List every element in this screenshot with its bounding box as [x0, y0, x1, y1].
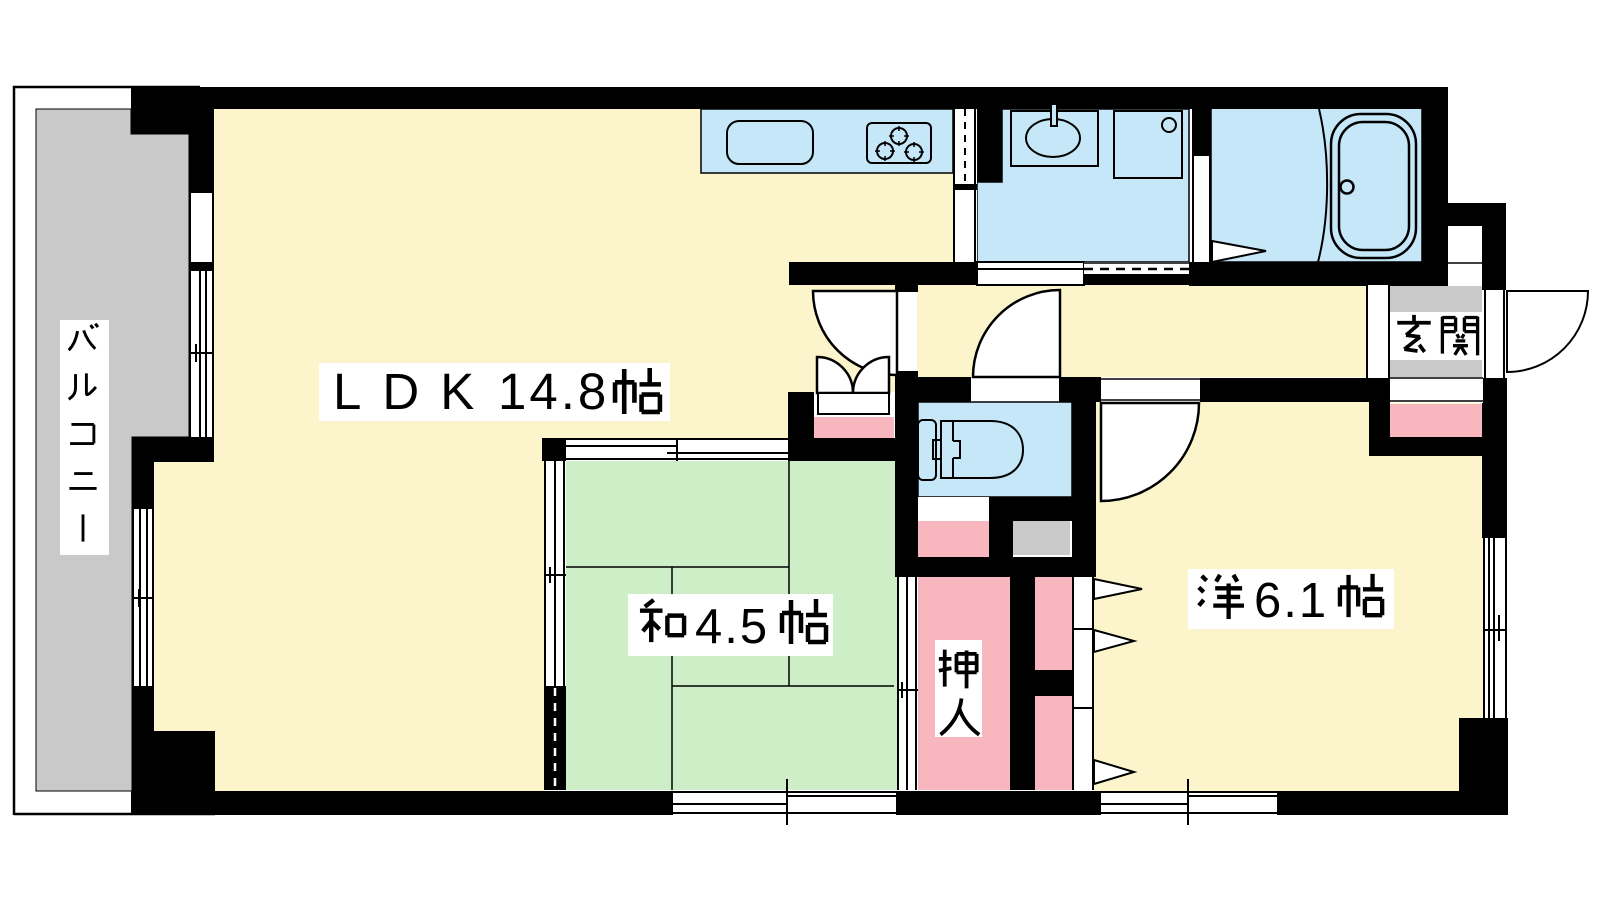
svg-text:14.8: 14.8: [498, 363, 609, 420]
svg-text:6.1: 6.1: [1254, 574, 1328, 628]
svg-text:4.5: 4.5: [695, 600, 769, 654]
svg-text:LDK: LDK: [333, 363, 495, 420]
